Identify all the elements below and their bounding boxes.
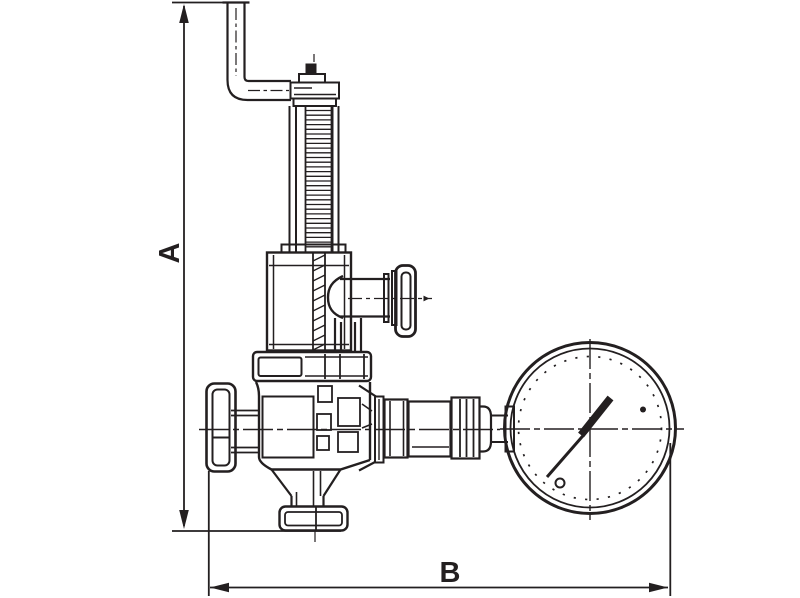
- svg-text:B: B: [440, 557, 461, 589]
- svg-text:A: A: [154, 242, 186, 263]
